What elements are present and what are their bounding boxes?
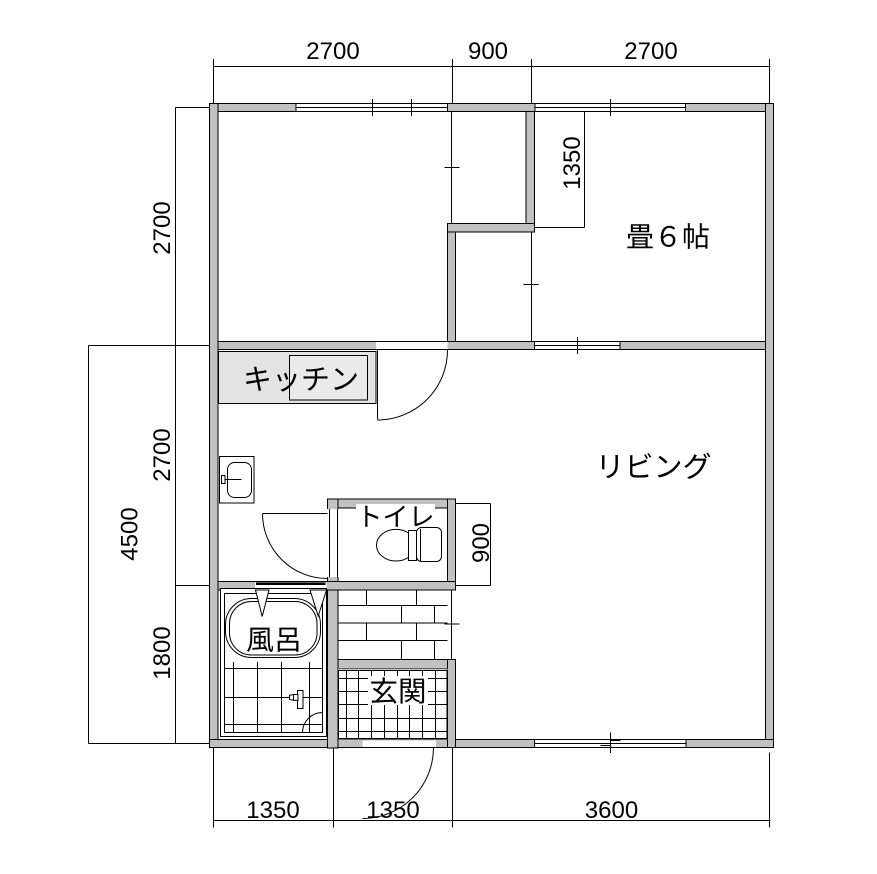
svg-text:1350: 1350 xyxy=(246,797,299,824)
svg-text:1800: 1800 xyxy=(149,626,176,679)
svg-text:1350: 1350 xyxy=(559,136,586,189)
svg-text:1350: 1350 xyxy=(366,797,419,824)
svg-text:900: 900 xyxy=(468,38,508,65)
svg-text:2700: 2700 xyxy=(149,428,176,481)
svg-text:2700: 2700 xyxy=(624,38,677,65)
svg-text:900: 900 xyxy=(468,523,495,563)
svg-text:2700: 2700 xyxy=(306,38,359,65)
svg-text:4500: 4500 xyxy=(117,507,144,560)
svg-text:3600: 3600 xyxy=(585,797,638,824)
svg-text:2700: 2700 xyxy=(149,201,176,254)
